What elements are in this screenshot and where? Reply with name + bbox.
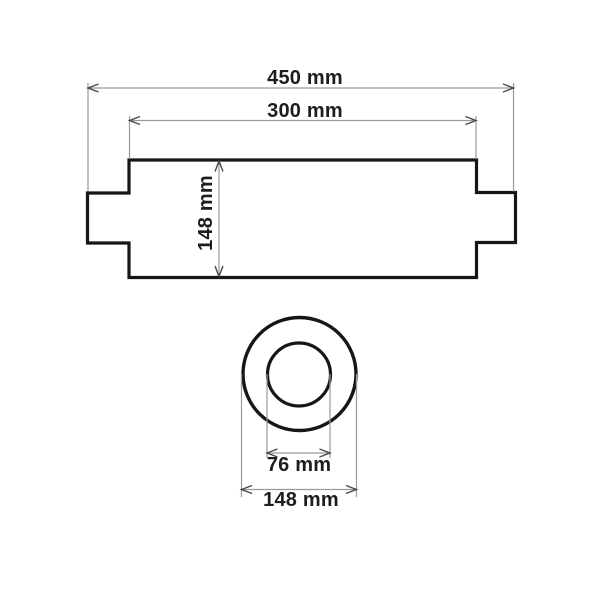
dimension-lines [88, 83, 514, 497]
dim-label-body-height: 148 mm [196, 175, 216, 251]
dim-label-body-length: 300 mm [267, 101, 343, 121]
shell-outer-circle [243, 318, 356, 431]
muffler-outline [88, 160, 516, 278]
muffler-dimension-diagram: 450 mm 300 mm 148 mm 76 mm 148 mm [0, 0, 600, 600]
dim-label-inner-diameter: 76 mm [267, 455, 331, 475]
dim-label-overall-length: 450 mm [267, 68, 343, 88]
pipe-inner-circle [268, 343, 331, 406]
dim-label-outer-diameter: 148 mm [263, 490, 339, 510]
